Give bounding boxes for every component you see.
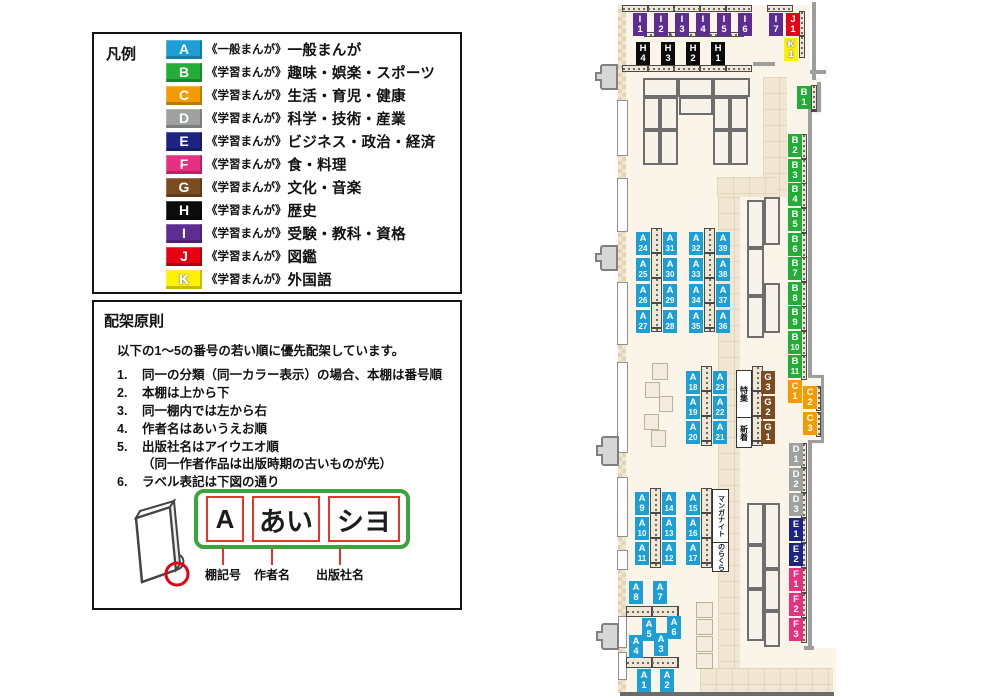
- shelf-label-E2: E2: [789, 543, 803, 566]
- label-cell-shelf-code: A: [206, 496, 244, 542]
- door: [601, 436, 619, 466]
- wall-bottom: [620, 692, 834, 696]
- category-label: 科学・技術・産業: [288, 108, 406, 129]
- legend-row-H: H《学習まんが》歴史: [166, 200, 436, 220]
- shelf-label-F3: F3: [789, 618, 803, 641]
- series-label: 《学習まんが》: [206, 64, 287, 80]
- shelf-rail: [651, 228, 662, 332]
- legend-row-A: A《一般まんが》一般まんが: [166, 39, 436, 59]
- shelf-rail: [622, 5, 752, 12]
- shelf-label-E1: E1: [789, 518, 803, 541]
- window: [617, 550, 628, 570]
- category-chip-I: I: [166, 224, 202, 243]
- series-label: 《学習まんが》: [206, 202, 287, 218]
- category-label: 文化・音楽: [288, 177, 362, 198]
- shelf-label-A37: A37: [716, 284, 730, 307]
- shelf-label-B5: B5: [788, 208, 802, 231]
- category-chip-E: E: [166, 132, 202, 151]
- shelf-block: [678, 78, 713, 97]
- shelf-label-A34: A34: [689, 284, 703, 307]
- shelf-label-D1: D1: [789, 443, 803, 466]
- door: [600, 245, 618, 271]
- category-label: ビジネス・政治・経済: [288, 131, 436, 152]
- shelf-label-I5: I5: [717, 13, 731, 36]
- principle-item-3: 3.同一棚内では左から右: [117, 402, 450, 420]
- wall: [817, 82, 821, 112]
- series-label: 《学習まんが》: [206, 248, 287, 264]
- principle-number: 6.: [117, 473, 142, 491]
- shelf-label-F1: F1: [789, 568, 803, 591]
- category-label: 食・料理: [288, 154, 347, 175]
- door: [600, 64, 618, 90]
- sign-norakura: のらくら: [712, 542, 729, 572]
- series-label: 《一般まんが》: [206, 41, 287, 57]
- shelf-label-A38: A38: [716, 258, 730, 281]
- window: [618, 616, 627, 648]
- shelf-label-A2: A2: [660, 669, 674, 692]
- shelf-label-A30: A30: [663, 258, 677, 281]
- shelf-block: [643, 130, 660, 165]
- table: [696, 619, 713, 635]
- shelf-rail: [650, 488, 661, 568]
- shelf-label-F2: F2: [789, 593, 803, 616]
- pointer-line: [222, 548, 224, 565]
- shelf-label-A27: A27: [636, 310, 650, 333]
- shelf-label-B4: B4: [788, 183, 802, 206]
- table: [644, 414, 659, 430]
- shelf-label-A23: A23: [713, 371, 727, 394]
- category-chip-D: D: [166, 109, 202, 128]
- table: [652, 363, 668, 380]
- principles-list: 1.同一の分類（同一カラー表示）の場合、本棚は番号順2.本棚は上から下3.同一棚…: [104, 366, 450, 491]
- aisle-path: [700, 668, 833, 692]
- shelf-block: [747, 589, 764, 641]
- door: [601, 623, 619, 650]
- shelf-block: [660, 97, 678, 130]
- series-label: 《学習まんが》: [206, 271, 287, 287]
- shelf-block: [764, 283, 780, 333]
- sign-new-arrivals: 新着: [736, 417, 752, 448]
- legend-row-D: D《学習まんが》科学・技術・産業: [166, 108, 436, 128]
- category-chip-J: J: [166, 247, 202, 266]
- shelf-label-I4: I4: [696, 13, 710, 36]
- window: [617, 282, 628, 345]
- legend-title: 凡例: [100, 39, 166, 287]
- sign-special-feature: 特集: [736, 370, 752, 418]
- legend-box: 凡例 A《一般まんが》一般まんがB《学習まんが》趣味・娯楽・スポーツC《学習まん…: [92, 32, 462, 294]
- shelf-label-A39: A39: [716, 232, 730, 255]
- legend-row-F: F《学習まんが》食・料理: [166, 154, 436, 174]
- shelf-block: [643, 97, 660, 130]
- shelf-label-A19: A19: [686, 396, 700, 419]
- shelf-label-H4: H4: [636, 42, 650, 65]
- legend-row-E: E《学習まんが》ビジネス・政治・経済: [166, 131, 436, 151]
- category-chip-C: C: [166, 86, 202, 105]
- sign-manga-night: マンガナイト: [712, 489, 729, 543]
- legend-row-G: G《学習まんが》文化・音楽: [166, 177, 436, 197]
- principle-item-5: 5.出版社名はアイウエオ順: [117, 438, 450, 456]
- shelf-label-A24: A24: [636, 232, 650, 255]
- principle-item-4: 4.作者名はあいうえお順: [117, 420, 450, 438]
- shelf-label-A36: A36: [716, 310, 730, 333]
- caption-publisher-name: 出版社名: [316, 566, 364, 583]
- floor-map: I1I2I3I4I5I6I7J1K1H4H3H2H1B1B2B3B4B5B6B7…: [590, 0, 856, 700]
- table: [696, 636, 713, 652]
- wall: [808, 108, 812, 378]
- shelf-label-A3: A3: [654, 633, 668, 656]
- shelf-label-B6: B6: [788, 233, 802, 256]
- shelf-label-A13: A13: [662, 517, 676, 540]
- shelf-label-B3: B3: [788, 159, 802, 182]
- legend-row-B: B《学習まんが》趣味・娯楽・スポーツ: [166, 62, 436, 82]
- shelf-label-C1: C1: [788, 380, 802, 403]
- shelf-block: [730, 130, 748, 165]
- principle-item-1: 1.同一の分類（同一カラー表示）の場合、本棚は番号順: [117, 366, 450, 384]
- shelf-label-G1: G1: [761, 421, 775, 444]
- shelf-label-A11: A11: [635, 542, 649, 565]
- principles-intro: 以下の1～5の番号の若い順に優先配架しています。: [117, 340, 450, 359]
- category-chip-H: H: [166, 201, 202, 220]
- shelf-label-I6: I6: [738, 13, 752, 36]
- series-label: 《学習まんが》: [206, 156, 287, 172]
- principle-number: 2.: [117, 384, 142, 402]
- shelf-label-B2: B2: [788, 134, 802, 157]
- shelf-rail: [622, 65, 752, 72]
- principle-text: 同一棚内では左から右: [142, 402, 267, 420]
- legend-rows: A《一般まんが》一般まんがB《学習まんが》趣味・娯楽・スポーツC《学習まんが》生…: [166, 39, 436, 287]
- series-label: 《学習まんが》: [206, 179, 287, 195]
- shelf-rail: [626, 657, 679, 668]
- page: { "legend": { "title": "凡例", "items": [ …: [0, 0, 1000, 700]
- category-label: 図鑑: [288, 246, 318, 267]
- wall: [804, 646, 814, 650]
- shelf-block: [747, 248, 764, 296]
- shelf-label-H1: H1: [711, 42, 725, 65]
- series-label: 《学習まんが》: [206, 133, 287, 149]
- aisle-path: [717, 177, 777, 197]
- shelf-block: [713, 130, 730, 165]
- wall: [812, 2, 816, 80]
- shelf-label-A7: A7: [653, 581, 667, 604]
- table: [645, 382, 660, 398]
- shelf-label-A28: A28: [663, 310, 677, 333]
- shelf-rail: [701, 488, 712, 568]
- caption-shelf-code: 棚記号: [205, 566, 241, 583]
- label-cell-publisher-name: シヨ: [328, 496, 400, 542]
- table: [696, 602, 713, 618]
- wall: [821, 375, 824, 443]
- shelf-label-G3: G3: [761, 371, 775, 394]
- placement-principles-box: 配架原則 以下の1～5の番号の若い順に優先配架しています。 1.同一の分類（同一…: [92, 300, 462, 610]
- shelf-label-A17: A17: [686, 542, 700, 565]
- shelf-block: [747, 200, 764, 248]
- book-illustration: [118, 494, 202, 598]
- shelf-label-G2: G2: [761, 396, 775, 419]
- category-chip-B: B: [166, 63, 202, 82]
- shelf-label-A16: A16: [686, 517, 700, 540]
- shelf-label-A1: A1: [637, 669, 651, 692]
- wall: [810, 70, 826, 74]
- window: [617, 100, 628, 156]
- series-label: 《学習まんが》: [206, 225, 287, 241]
- shelf-block: [764, 569, 780, 611]
- principles-title: 配架原則: [104, 310, 450, 331]
- shelf-label-H2: H2: [686, 42, 700, 65]
- shelf-label-I3: I3: [675, 13, 689, 36]
- legend-row-I: I《学習まんが》受験・教科・資格: [166, 223, 436, 243]
- category-chip-K: K: [166, 270, 202, 289]
- shelf-label-B8: B8: [788, 282, 802, 305]
- shelf-label-A10: A10: [635, 517, 649, 540]
- principle-text: 作者名はあいうえお順: [142, 420, 267, 438]
- shelf-label-K1: K1: [784, 38, 798, 61]
- category-chip-G: G: [166, 178, 202, 197]
- pointer-line: [271, 548, 273, 565]
- shelf-label-A35: A35: [689, 310, 703, 333]
- pointer-line: [339, 548, 341, 565]
- principle-number: 4.: [117, 420, 142, 438]
- principle-number: 3.: [117, 402, 142, 420]
- shelf-label-H3: H3: [661, 42, 675, 65]
- category-label: 歴史: [288, 200, 318, 221]
- shelf-label-B7: B7: [788, 257, 802, 280]
- principle-note: （同一作者作品は出版時期の古いものが先）: [142, 456, 450, 473]
- shelf-label-B1: B1: [797, 86, 811, 109]
- shelf-block: [764, 503, 780, 569]
- table: [659, 396, 673, 412]
- shelf-label-I1: I1: [633, 13, 647, 36]
- shelf-block: [747, 296, 764, 338]
- shelf-label-C3: C3: [803, 412, 817, 435]
- shelf-label-A21: A21: [713, 421, 727, 444]
- shelf-block: [730, 97, 748, 130]
- shelf-label-D2: D2: [789, 468, 803, 491]
- shelf-label-A32: A32: [689, 232, 703, 255]
- table: [696, 653, 713, 669]
- shelf-block: [713, 97, 730, 130]
- shelf-label-B9: B9: [788, 306, 802, 329]
- shelf-label-D3: D3: [789, 493, 803, 516]
- shelf-label-A31: A31: [663, 232, 677, 255]
- shelf-rail: [704, 228, 715, 332]
- series-label: 《学習まんが》: [206, 110, 287, 126]
- shelf-label-A25: A25: [636, 258, 650, 281]
- series-label: 《学習まんが》: [206, 87, 287, 103]
- shelf-label-A6: A6: [667, 616, 681, 639]
- shelf-label-J1: J1: [786, 13, 800, 36]
- shelf-label-B11: B11: [788, 355, 802, 378]
- shelf-block: [764, 611, 780, 647]
- shelf-block: [643, 78, 678, 97]
- legend-row-C: C《学習まんが》生活・育児・健康: [166, 85, 436, 105]
- shelf-block: [747, 545, 764, 589]
- window: [617, 477, 628, 537]
- shelf-label-A26: A26: [636, 284, 650, 307]
- window: [617, 178, 628, 232]
- principle-text: 同一の分類（同一カラー表示）の場合、本棚は番号順: [142, 366, 442, 384]
- shelf-rail: [767, 5, 793, 12]
- caption-author-name: 作者名: [254, 566, 290, 583]
- shelf-block: [713, 78, 750, 97]
- shelf-label-C2: C2: [803, 386, 817, 409]
- label-cell-author-name: あい: [252, 496, 320, 542]
- category-chip-A: A: [166, 40, 202, 59]
- legend-row-J: J《学習まんが》図鑑: [166, 246, 436, 266]
- wall: [753, 62, 775, 66]
- category-label: 趣味・娯楽・スポーツ: [288, 62, 436, 83]
- shelf-label-A18: A18: [686, 371, 700, 394]
- shelf-label-A29: A29: [663, 284, 677, 307]
- shelf-label-I2: I2: [654, 13, 668, 36]
- shelf-label-A33: A33: [689, 258, 703, 281]
- shelf-label-A4: A4: [629, 635, 643, 658]
- shelf-block: [764, 197, 780, 245]
- principle-text: 出版社名はアイウエオ順: [142, 438, 279, 456]
- shelf-label-B10: B10: [788, 331, 802, 354]
- legend-row-K: K《学習まんが》外国語: [166, 269, 436, 289]
- principle-number: 1.: [117, 366, 142, 384]
- shelf-block: [660, 130, 678, 165]
- category-label: 一般まんが: [288, 39, 362, 60]
- shelf-label-A8: A8: [629, 581, 643, 604]
- shelf-label-A12: A12: [662, 542, 676, 565]
- shelf-rail: [811, 85, 817, 112]
- label-format-plate: Aあいシヨ: [194, 489, 410, 549]
- shelf-block: [679, 97, 713, 115]
- principle-item-2: 2.本棚は上から下: [117, 384, 450, 402]
- wall: [808, 443, 812, 649]
- category-label: 外国語: [288, 269, 332, 290]
- category-chip-F: F: [166, 155, 202, 174]
- shelf-label-I7: I7: [769, 13, 783, 36]
- shelf-block: [747, 503, 764, 545]
- category-label: 生活・育児・健康: [288, 85, 406, 106]
- shelf-label-A20: A20: [686, 421, 700, 444]
- shelf-label-A9: A9: [635, 492, 649, 515]
- shelf-label-A14: A14: [662, 492, 676, 515]
- shelf-rail: [701, 366, 712, 446]
- shelf-label-A22: A22: [713, 396, 727, 419]
- table: [651, 430, 666, 447]
- category-label: 受験・教科・資格: [288, 223, 406, 244]
- principle-number: 5.: [117, 438, 142, 456]
- shelf-label-A15: A15: [686, 492, 700, 515]
- principle-text: 本棚は上から下: [142, 384, 230, 402]
